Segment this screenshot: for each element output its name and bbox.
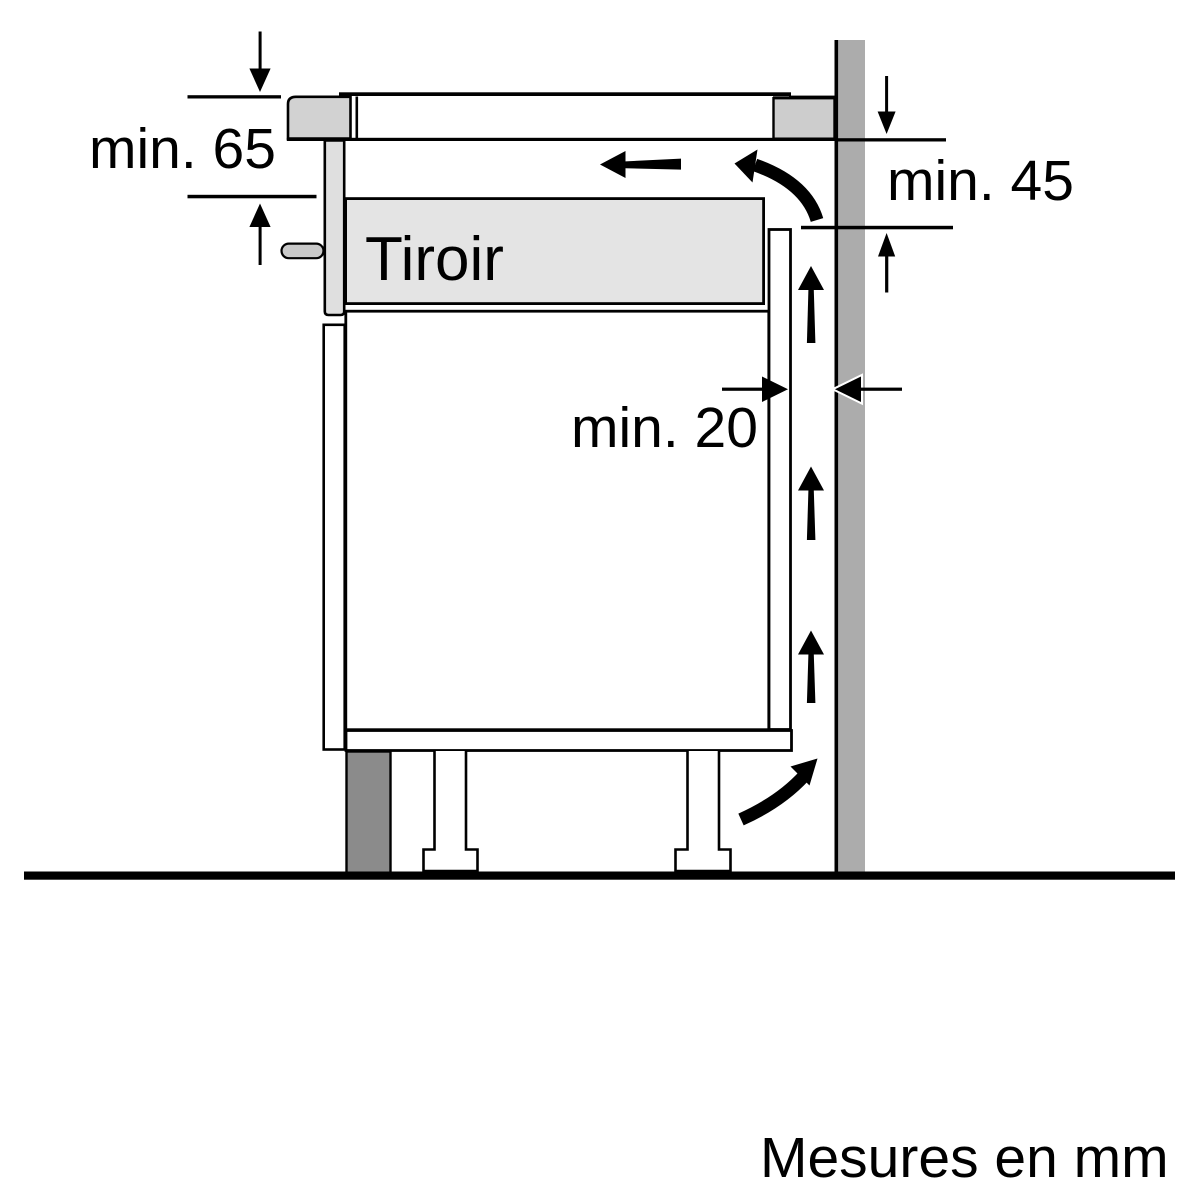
svg-text:min. 20: min. 20 — [571, 396, 758, 460]
svg-text:min. 65: min. 65 — [89, 117, 276, 181]
svg-text:min. 45: min. 45 — [887, 149, 1074, 213]
svg-text:Tiroir: Tiroir — [365, 225, 504, 294]
svg-text:Mesures en mm: Mesures en mm — [760, 1126, 1169, 1190]
